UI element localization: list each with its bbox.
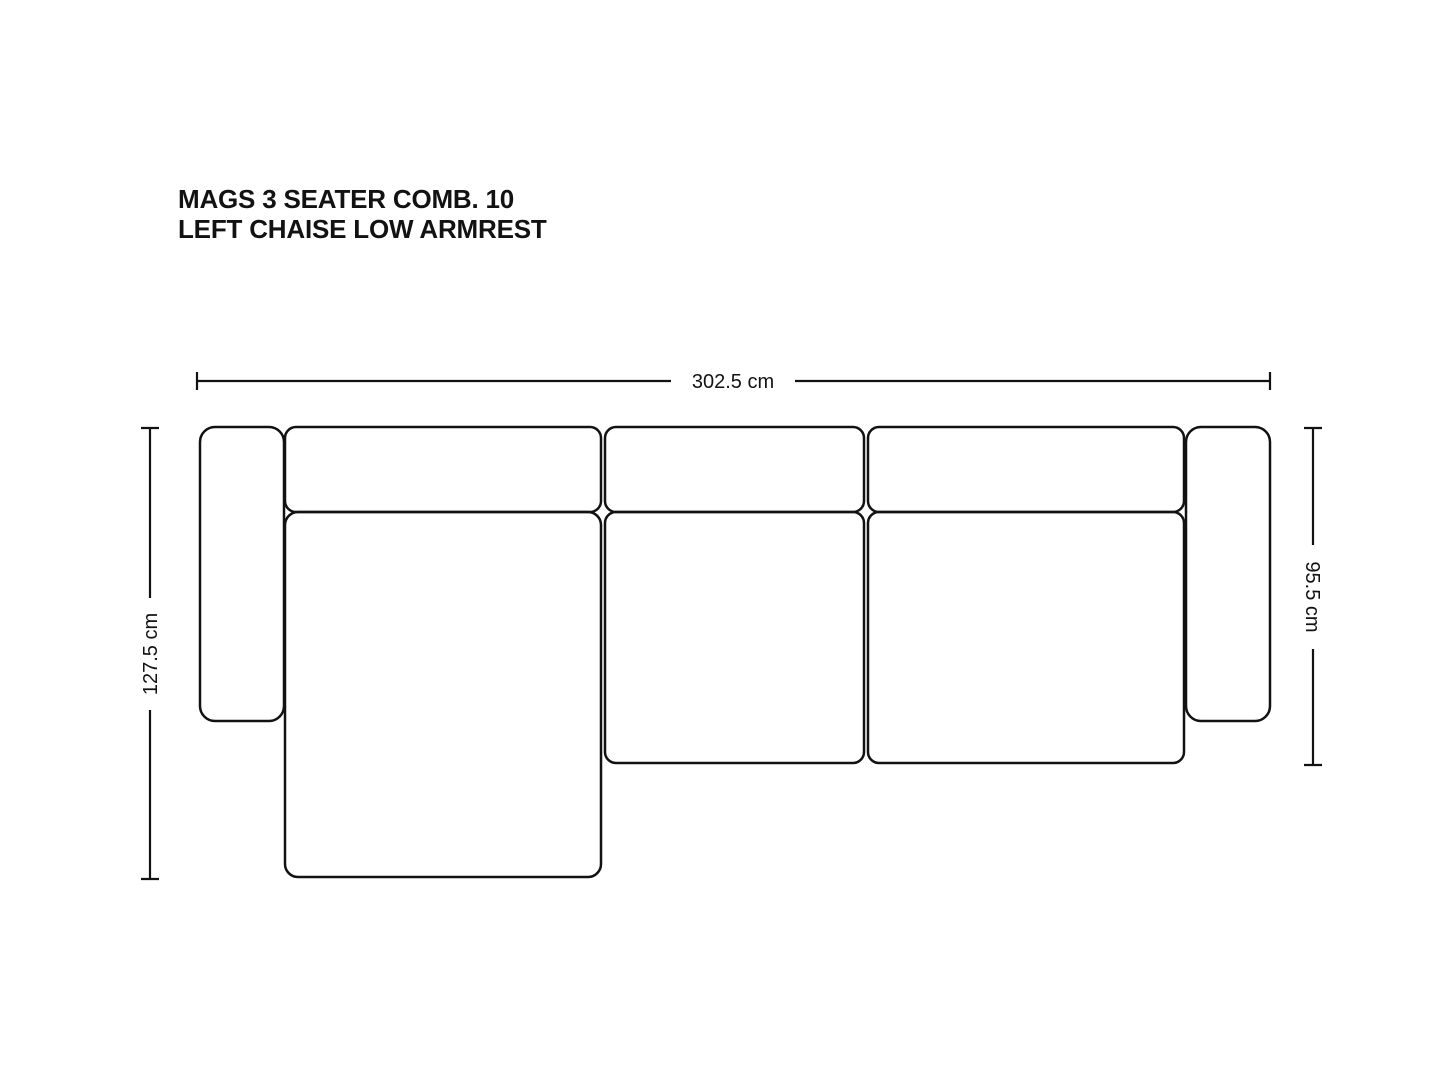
width-dimension-label: 302.5 cm [692, 371, 774, 393]
left-armrest-shape [200, 427, 284, 721]
backrest-cushion-right-shape [868, 427, 1184, 512]
product-title-line2: LEFT CHAISE LOW ARMREST [178, 214, 547, 244]
product-title-line1: MAGS 3 SEATER COMB. 10 [178, 184, 514, 214]
seat-cushion-middle-shape [605, 512, 864, 763]
right-armrest-shape [1186, 427, 1270, 721]
backrest-cushion-left-shape [285, 427, 601, 512]
sofa-dimension-diagram: MAGS 3 SEATER COMB. 10 LEFT CHAISE LOW A… [0, 0, 1445, 1087]
seat-cushion-right-shape [868, 512, 1184, 763]
chaise-depth-dimension-label: 127.5 cm [140, 613, 162, 695]
dimension-lines-group [141, 372, 1322, 879]
chaise-seat-shape [285, 512, 601, 877]
sofa-outline-group [200, 427, 1270, 877]
sofa-depth-dimension-label: 95.5 cm [1301, 561, 1323, 632]
sofa-dimension-page: MAGS 3 SEATER COMB. 10 LEFT CHAISE LOW A… [0, 0, 1445, 1087]
backrest-cushion-middle-shape [605, 427, 864, 512]
